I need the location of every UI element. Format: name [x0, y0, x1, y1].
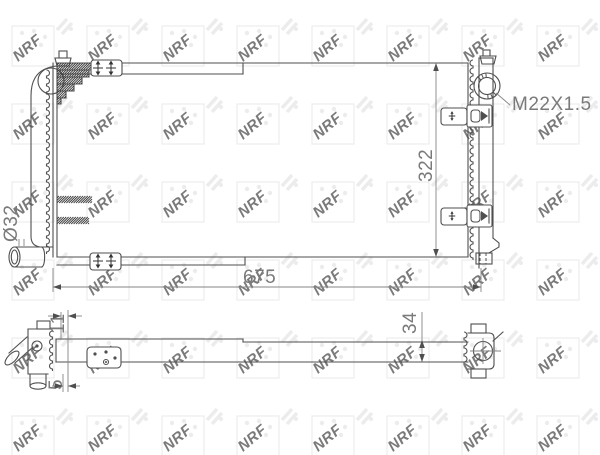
svg-text:NRF: NRF: [385, 109, 421, 143]
svg-text:NRF: NRF: [385, 421, 421, 455]
svg-text:NRF: NRF: [160, 31, 196, 65]
label-thread-spec: M22X1.5: [512, 94, 592, 115]
svg-text:NRF: NRF: [235, 31, 271, 65]
thread-leader-line: [496, 93, 510, 105]
svg-text:NRF: NRF: [535, 31, 571, 65]
svg-text:NRF: NRF: [310, 31, 346, 65]
svg-text:NRF: NRF: [385, 343, 421, 377]
nrf-watermark-pattern: NRFNRFNRFNRFNRFNRFNRFNRFNRFNRFNRFNRFNRFN…: [10, 19, 598, 455]
label-depth-34: 34: [400, 312, 421, 334]
mounting-bracket-right-top: [441, 105, 492, 127]
svg-text:NRF: NRF: [160, 421, 196, 455]
svg-text:NRF: NRF: [535, 265, 571, 299]
svg-text:NRF: NRF: [10, 109, 46, 143]
svg-text:NRF: NRF: [460, 31, 496, 65]
svg-text:NRF: NRF: [160, 187, 196, 221]
svg-text:NRF: NRF: [310, 421, 346, 455]
tank-core-joints: [47, 60, 474, 260]
svg-text:NRF: NRF: [10, 31, 46, 65]
svg-text:NRF: NRF: [85, 109, 121, 143]
svg-text:NRF: NRF: [160, 109, 196, 143]
svg-text:NRF: NRF: [235, 421, 271, 455]
bottom-outlet-stub: [476, 253, 492, 264]
svg-text:NRF: NRF: [235, 109, 271, 143]
radiator-technical-drawing: NRFNRFNRFNRFNRFNRFNRFNRFNRFNRFNRFNRFNRFN…: [0, 0, 600, 455]
right-tank-taper: [479, 238, 499, 253]
svg-text:NRF: NRF: [10, 421, 46, 455]
svg-text:NRF: NRF: [310, 343, 346, 377]
svg-text:NRF: NRF: [160, 265, 196, 299]
left-cap-stem: [59, 51, 67, 58]
dimension-arrowheads: [53, 63, 481, 389]
svg-text:NRF: NRF: [460, 265, 496, 299]
svg-text:NRF: NRF: [385, 265, 421, 299]
svg-text:NRF: NRF: [85, 187, 121, 221]
pipe-bottom-end: [30, 383, 46, 389]
svg-text:NRF: NRF: [535, 421, 571, 455]
svg-text:NRF: NRF: [310, 187, 346, 221]
svg-text:NRF: NRF: [460, 421, 496, 455]
svg-text:NRF: NRF: [385, 187, 421, 221]
right-cap-flange: [480, 56, 496, 64]
svg-text:NRF: NRF: [535, 187, 571, 221]
svg-text:NRF: NRF: [310, 109, 346, 143]
label-width-675: 675: [243, 267, 276, 288]
svg-text:NRF: NRF: [235, 343, 271, 377]
svg-text:NRF: NRF: [85, 421, 121, 455]
svg-text:NRF: NRF: [385, 31, 421, 65]
svg-text:NRF: NRF: [10, 265, 46, 299]
mounting-bracket-right-bottom: [441, 205, 492, 227]
svg-text:NRF: NRF: [235, 187, 271, 221]
bracket-arrow-glyphs: [93, 61, 455, 269]
technical-drawing-canvas: NRFNRFNRFNRFNRFNRFNRFNRFNRFNRFNRFNRFNRFN…: [0, 0, 600, 455]
label-height-322: 322: [416, 149, 437, 182]
svg-text:NRF: NRF: [310, 265, 346, 299]
svg-text:NRF: NRF: [160, 343, 196, 377]
svg-text:NRF: NRF: [535, 343, 571, 377]
label-inlet-diameter: Ø32: [1, 205, 22, 242]
core: [57, 63, 468, 265]
inlet-pipe: [9, 247, 45, 267]
bottom-bracket-foot: [87, 347, 121, 368]
